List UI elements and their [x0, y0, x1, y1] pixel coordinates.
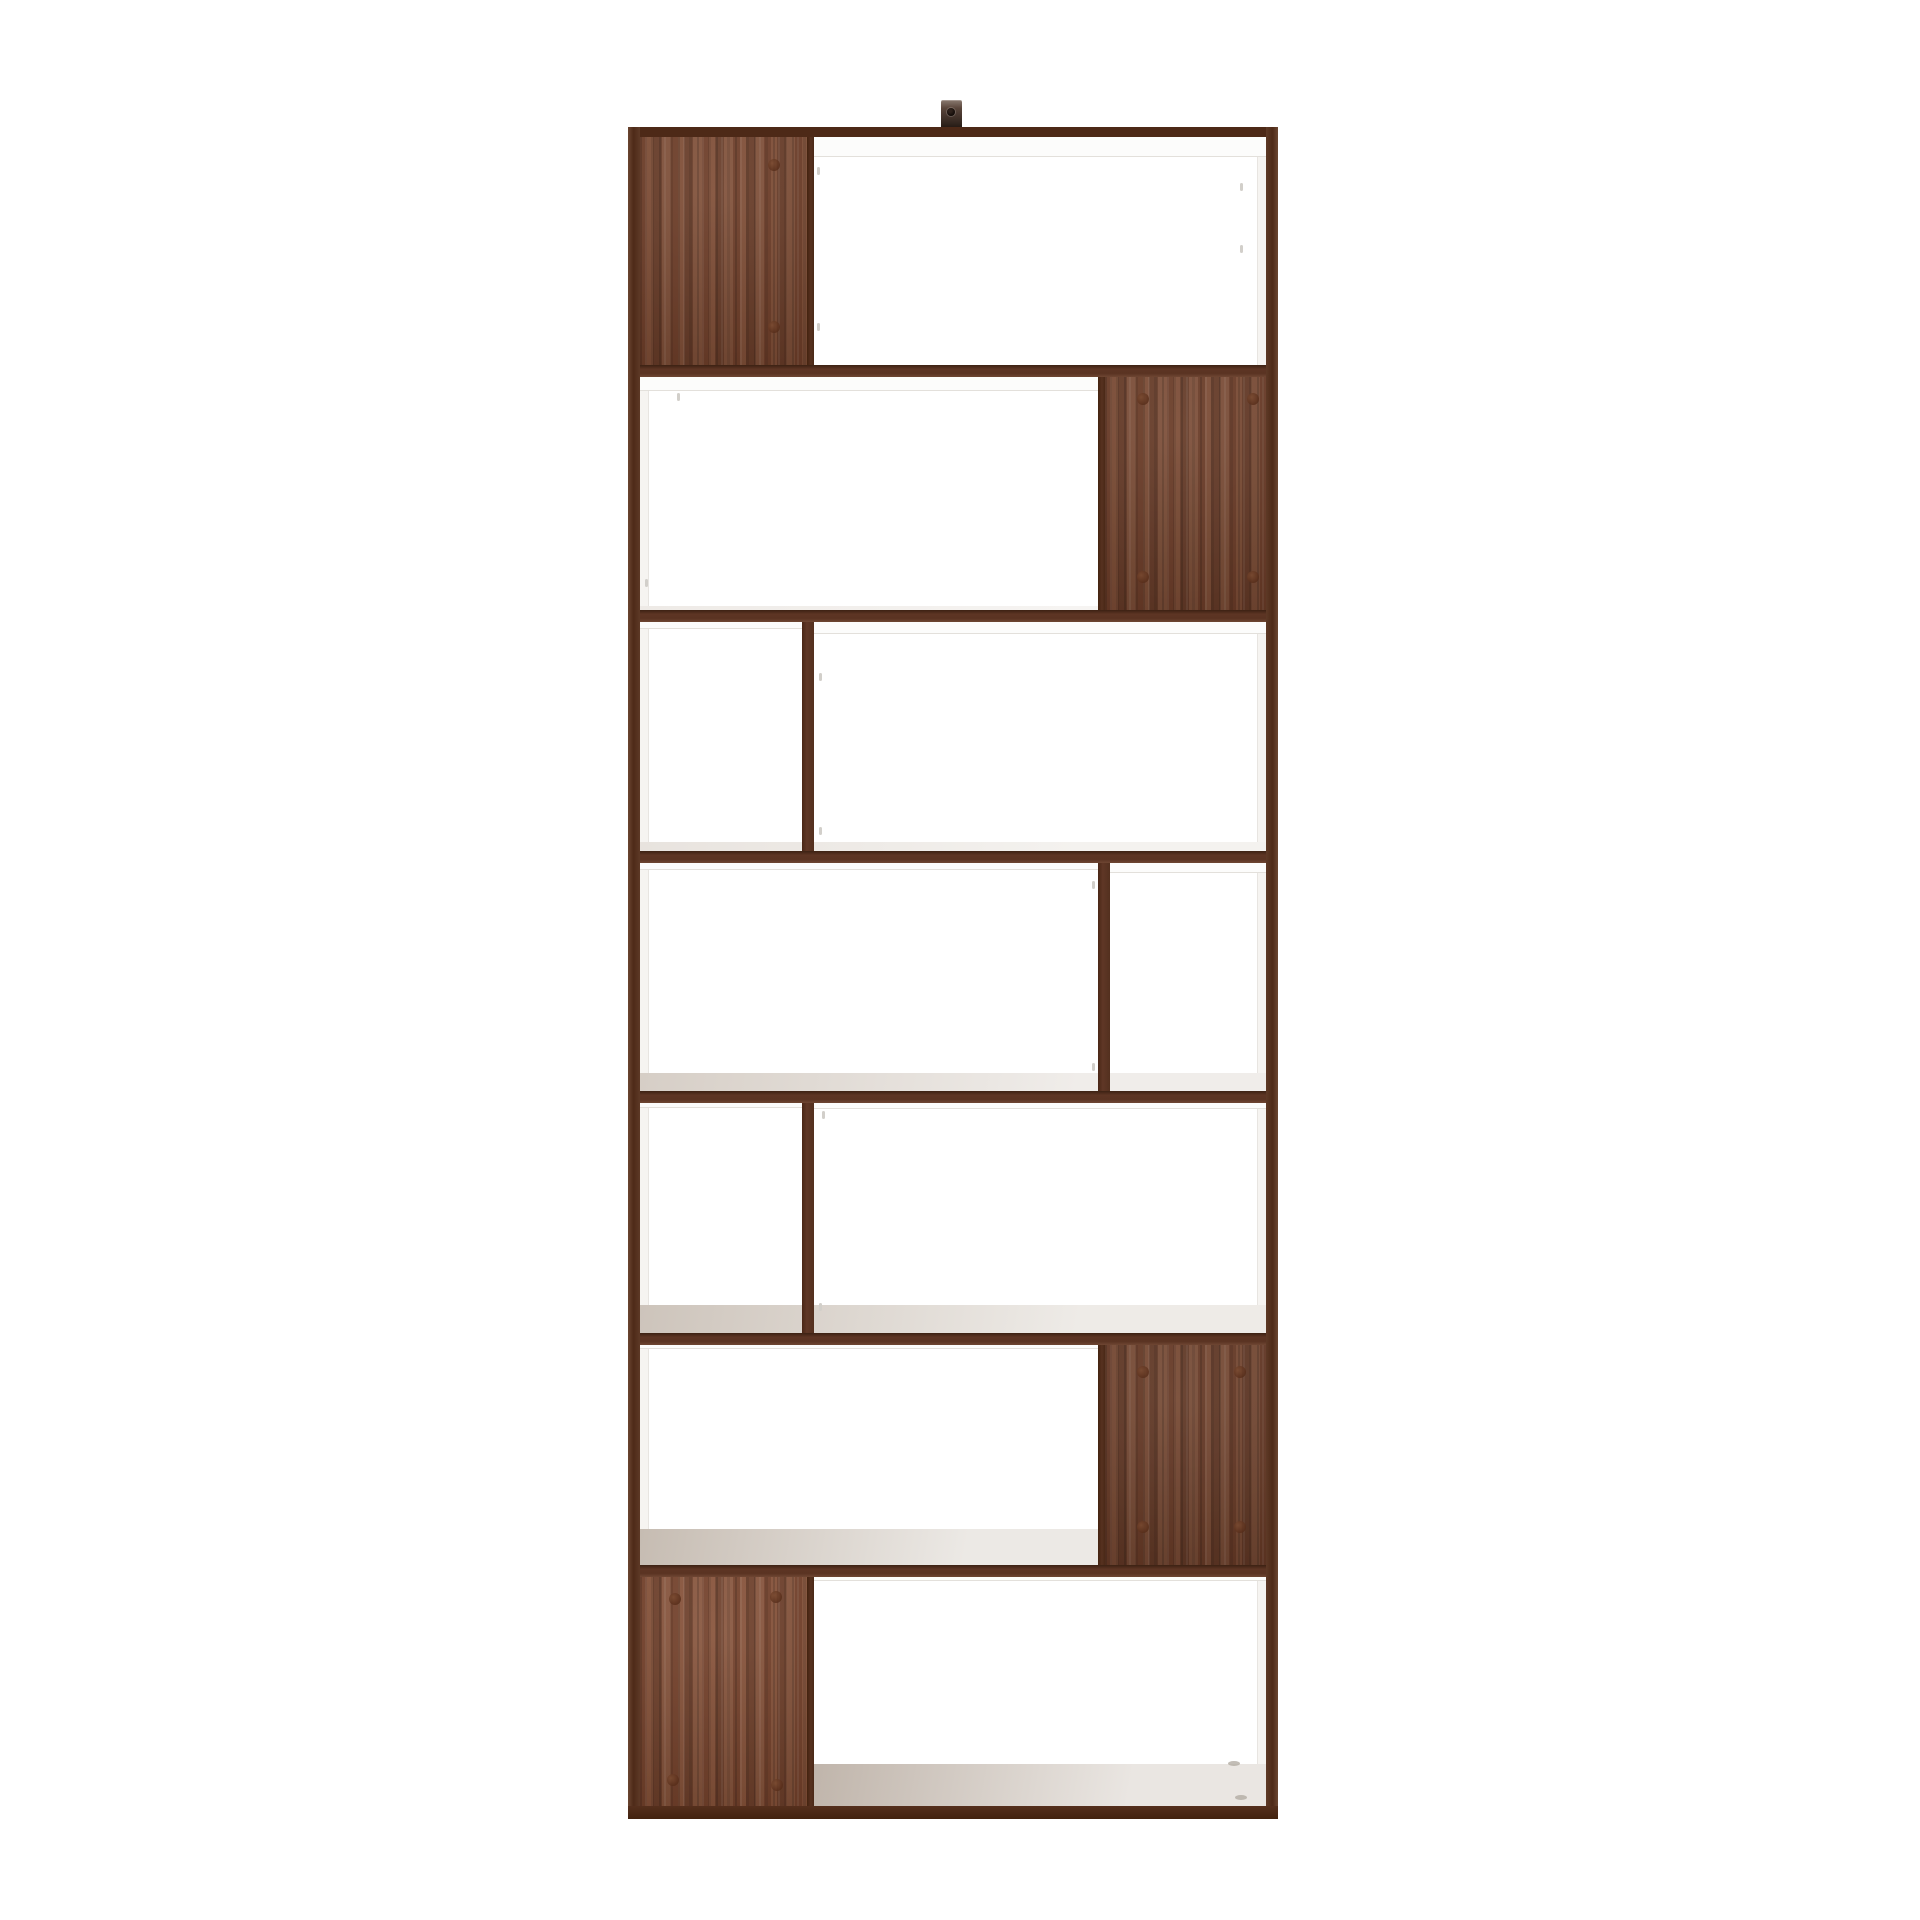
pin-hole-tick [1240, 183, 1243, 191]
wood-back-panel [640, 137, 807, 365]
shelf-underside-lip [640, 1345, 1098, 1349]
pin-hole-tick [645, 579, 648, 587]
panel-dowel-dot [771, 1779, 783, 1791]
shelf-divider [640, 851, 1266, 863]
panel-dowel-dot [1234, 1366, 1246, 1378]
panel-dowel-dot [667, 1774, 679, 1786]
shelf-underside-lip [640, 377, 1098, 391]
panel-dowel-dot [1137, 571, 1149, 583]
bracket-hole [947, 108, 955, 116]
vertical-partition [802, 1103, 814, 1333]
shelf-surface [640, 842, 1266, 851]
shelf-surface [640, 1073, 1266, 1091]
shelf-underside-lip [814, 137, 1266, 157]
panel-dowel-dot [770, 1591, 782, 1603]
wall-mount-bracket [941, 100, 962, 127]
shelf-divider [640, 365, 1266, 377]
shelf-underside-lip [814, 622, 1266, 634]
panel-dowel-dot [669, 1593, 681, 1605]
panel-edge [807, 1577, 814, 1806]
panel-edge [807, 137, 814, 365]
pin-hole-tick [677, 393, 680, 401]
panel-dowel-dot [1247, 393, 1259, 405]
vertical-partition [1098, 863, 1110, 1091]
pin-hole-tick [819, 1303, 822, 1311]
frame-bottom [628, 1806, 1278, 1819]
shelf-underside-lip [1110, 863, 1266, 873]
panel-dowel-dot [1137, 1366, 1149, 1378]
frame-left [628, 127, 640, 1819]
vertical-partition [802, 622, 814, 851]
shelf-surface [640, 1305, 1266, 1333]
shelf-underside-lip [640, 863, 1098, 870]
wood-back-panel [1105, 377, 1266, 610]
shelf-divider [640, 1565, 1266, 1577]
pin-hole-tick [817, 167, 820, 175]
shelf-surface [640, 1529, 1105, 1565]
panel-dowel-dot [768, 159, 780, 171]
wood-back-panel [640, 1577, 807, 1806]
product-photo-canvas [0, 0, 1920, 1920]
bookcase [628, 127, 1278, 1819]
pin-hole-tick [1240, 245, 1243, 253]
shelf-underside-lip [640, 1103, 802, 1108]
surface-mark [1235, 1795, 1247, 1800]
surface-mark [1228, 1761, 1240, 1766]
panel-dowel-dot [1137, 1521, 1149, 1533]
shelf-divider [640, 1091, 1266, 1103]
shelf-divider [640, 1333, 1266, 1345]
pin-hole-tick [819, 827, 822, 835]
pin-hole-tick [822, 1111, 825, 1119]
panel-dowel-dot [1137, 393, 1149, 405]
pin-hole-tick [1092, 1063, 1095, 1071]
panel-edge [1098, 1345, 1105, 1565]
shelf-surface [814, 1764, 1266, 1806]
panel-dowel-dot [1247, 571, 1259, 583]
pin-hole-tick [1092, 881, 1095, 889]
panel-dowel-dot [768, 321, 780, 333]
panel-edge [1098, 377, 1105, 610]
pin-hole-tick [819, 673, 822, 681]
frame-top [628, 127, 1278, 137]
shelf-underside-lip [814, 1577, 1266, 1581]
shelf-divider [640, 610, 1266, 622]
panel-dowel-dot [1234, 1521, 1246, 1533]
pin-hole-tick [817, 323, 820, 331]
shelf-underside-lip [640, 622, 802, 629]
frame-right [1266, 127, 1278, 1819]
shelf-underside-lip [814, 1103, 1266, 1109]
